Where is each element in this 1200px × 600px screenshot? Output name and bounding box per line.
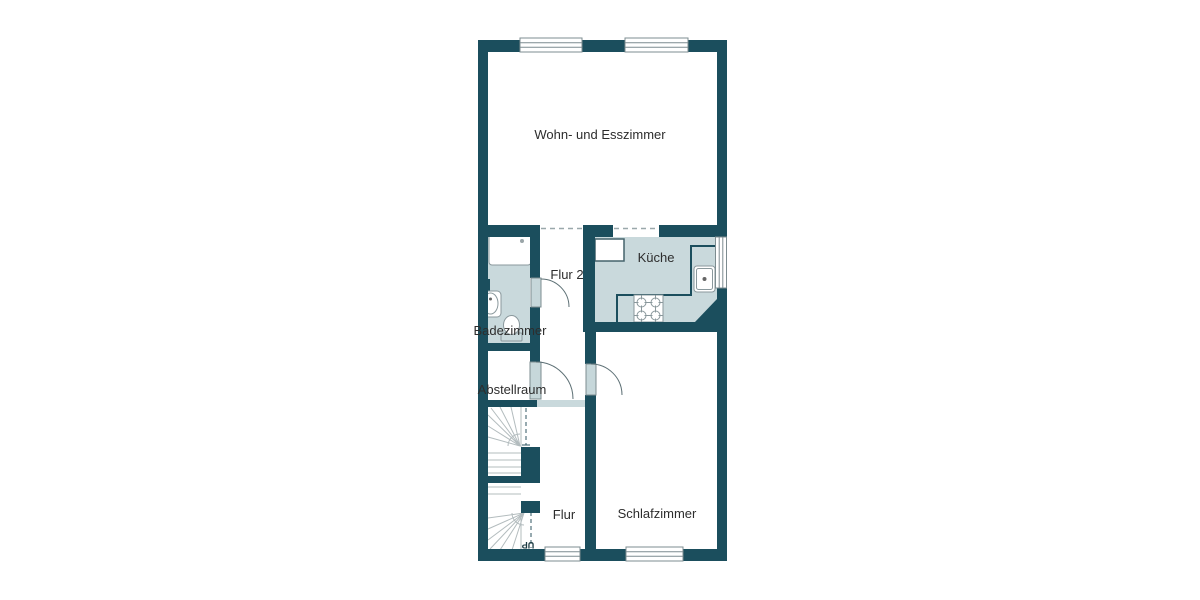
wall-bathroom-east-upper	[530, 237, 540, 278]
wall-stair-core-lower	[521, 501, 540, 513]
window-hall-bottom	[545, 547, 580, 561]
window-living-right	[625, 38, 688, 52]
window-bedroom-bottom	[626, 547, 683, 561]
floor-plan-svg: UP UP	[0, 0, 1200, 600]
fridge-counter	[595, 239, 624, 261]
wall-stair-core-upper	[521, 447, 540, 476]
door-bedroom	[586, 364, 622, 395]
room-label-kitchen: Küche	[638, 250, 675, 265]
wall-living-south-right	[659, 225, 727, 237]
wall-living-south-left	[478, 225, 540, 237]
wall-hall-bedroom-upper	[585, 332, 596, 364]
wall-hall-bedroom-lower	[585, 395, 596, 549]
hall-threshold-strip	[537, 400, 585, 407]
wall-bathroom-south	[488, 343, 540, 351]
room-label-living: Wohn- und Esszimmer	[534, 127, 666, 142]
window-kitchen-right	[716, 237, 727, 288]
wall-bottom	[478, 549, 727, 561]
room-label-hall: Flur	[553, 507, 576, 522]
kitchen-sink	[694, 266, 715, 292]
wall-kitchen-south	[583, 322, 717, 332]
stairs-up-label-lower: UP	[522, 540, 535, 550]
door-bathroom	[531, 278, 569, 307]
stairs-up-lower-flight: UP	[488, 487, 534, 550]
wall-right	[717, 40, 727, 561]
shower	[489, 234, 531, 265]
room-label-storage: Abstellraum	[478, 382, 547, 397]
room-label-bedroom: Schlafzimmer	[618, 506, 697, 521]
wall-stair-middle	[478, 476, 540, 483]
window-living-left	[520, 38, 582, 52]
room-label-hall2: Flur 2	[550, 267, 583, 282]
wall-storage-south	[478, 400, 537, 407]
stove-4-burners	[634, 295, 663, 323]
room-label-bathroom: Badezimmer	[474, 323, 548, 338]
floor-plan-canvas: UP UP	[0, 0, 1200, 600]
wall-hall2-kitchen	[583, 225, 595, 332]
wall-top	[478, 40, 727, 52]
